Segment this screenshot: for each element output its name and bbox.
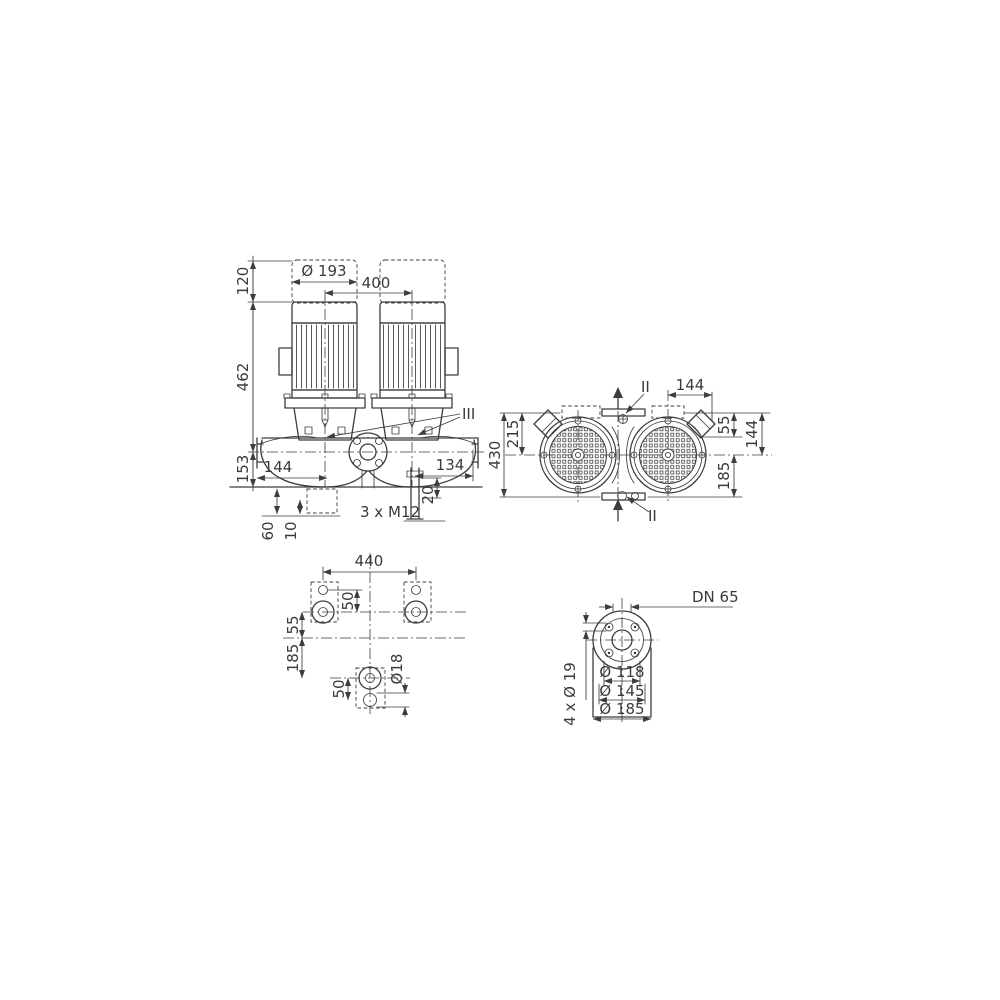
dim-144-side: 144: [743, 420, 761, 449]
dim-153: 153: [234, 455, 252, 484]
dim-55-foundation: 55: [284, 615, 302, 634]
technical-drawing-page: 120 462 153 Ø 193 400 144 134 20 3 x M12…: [0, 0, 1000, 1000]
grout-box: [307, 489, 337, 513]
dim-dia18: Ø18: [388, 654, 406, 685]
motor-left: [279, 302, 365, 440]
dim-462: 462: [234, 363, 252, 392]
top-view: II II 430 215 144 55 144 185: [486, 376, 772, 525]
dim-dia118: Ø 118: [599, 663, 644, 681]
dim-55-top-view: 55: [715, 415, 733, 434]
dim-215: 215: [504, 420, 522, 449]
foundation-view: 440 50 55 185 50 Ø18: [283, 552, 468, 717]
dim-134: 134: [436, 456, 465, 474]
label-dn65: DN 65: [692, 588, 739, 606]
fan-cover-right: [630, 417, 706, 493]
terminal-box-right: [687, 410, 715, 438]
terminal-box-left: [534, 410, 562, 438]
dim-4x-dia19: 4 x Ø 19: [561, 662, 579, 726]
fan-cover-left: [540, 417, 616, 493]
center-flange: [349, 433, 387, 488]
dim-50-top: 50: [339, 591, 357, 610]
pipe-flange-bottom: [602, 492, 645, 501]
flange-view: DN 65 Ø 118 Ø 145 Ø 185 4 x Ø 19: [561, 588, 739, 726]
pipe-flange-top: [602, 409, 645, 424]
terminal-box-alt-left: [562, 406, 600, 418]
dim-120: 120: [234, 267, 252, 296]
motor-right: [371, 302, 458, 440]
dim-3xm12: 3 x M12: [360, 503, 420, 521]
dim-400: 400: [362, 274, 391, 292]
dim-dia193: Ø 193: [301, 262, 346, 280]
dim-60: 60: [259, 521, 277, 540]
dim-dia185: Ø 185: [599, 700, 644, 718]
dim-144-top: 144: [676, 376, 705, 394]
pump-dimension-drawing: 120 462 153 Ø 193 400 144 134 20 3 x M12…: [0, 0, 1000, 1000]
dim-430: 430: [486, 441, 504, 470]
anchor-bolt-bottom: [356, 667, 385, 708]
flow-arrow-top: [613, 387, 623, 409]
label-ii-top: II: [641, 378, 650, 396]
terminal-box-side-left: [279, 348, 292, 375]
dim-144: 144: [264, 458, 293, 476]
label-ii-bottom: II: [648, 507, 657, 525]
dim-185-foundation: 185: [284, 644, 302, 673]
front-view: 120 462 153 Ø 193 400 144 134 20 3 x M12…: [230, 256, 484, 541]
dim-20: 20: [419, 485, 437, 504]
dim-440: 440: [355, 552, 384, 570]
anchor-bolt-top-right: [404, 582, 431, 623]
label-iii: III: [462, 405, 475, 423]
dim-dia145: Ø 145: [599, 682, 644, 700]
terminal-box-side-right: [445, 348, 458, 375]
anchor-bolt-top-left: [311, 582, 338, 623]
dim-185-top-view: 185: [715, 462, 733, 491]
flow-arrow-bottom: [613, 499, 623, 521]
dim-10: 10: [282, 521, 300, 540]
dim-50-bottom: 50: [330, 679, 348, 698]
